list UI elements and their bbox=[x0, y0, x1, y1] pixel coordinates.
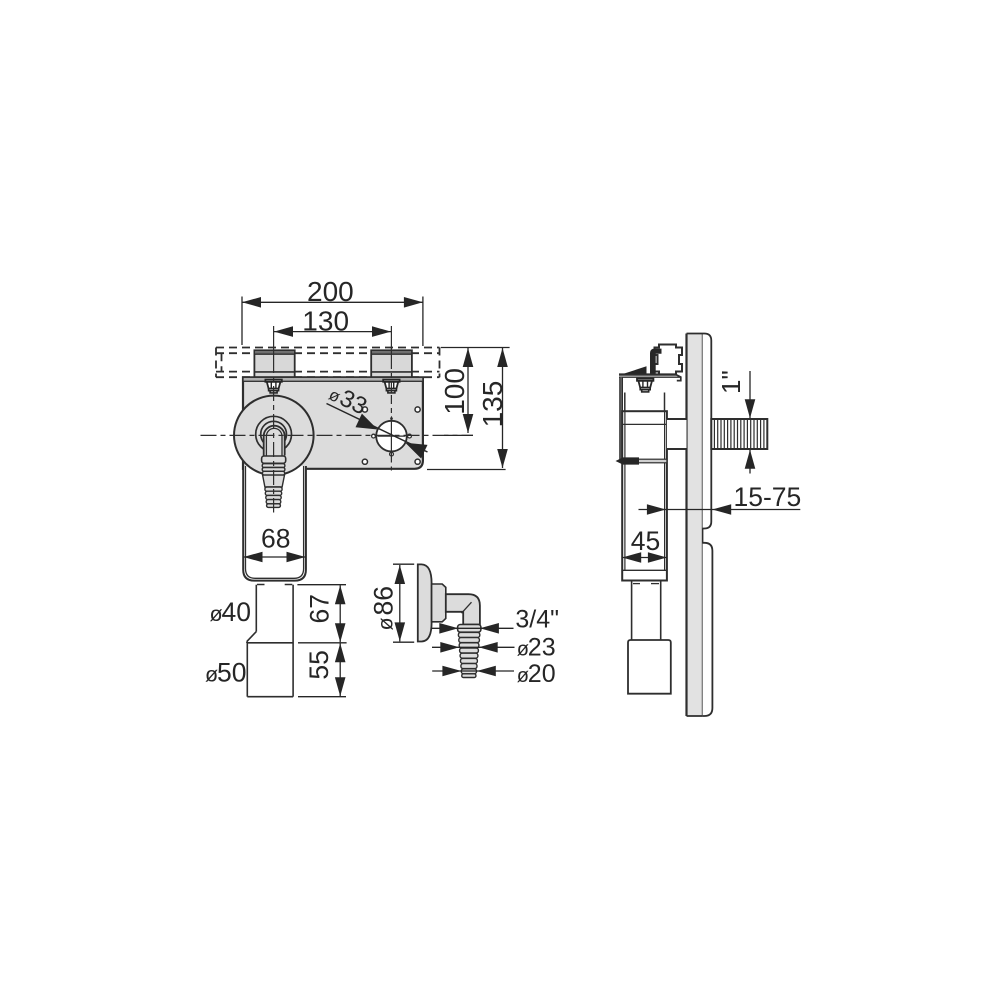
svg-text:100: 100 bbox=[439, 368, 470, 415]
svg-text:68: 68 bbox=[261, 523, 290, 553]
svg-text:86: 86 bbox=[369, 586, 399, 615]
svg-text:3/4": 3/4" bbox=[515, 606, 559, 634]
svg-text:15-75: 15-75 bbox=[734, 482, 802, 512]
svg-text:130: 130 bbox=[302, 306, 349, 337]
svg-text:50: 50 bbox=[217, 658, 246, 688]
svg-text:ø: ø bbox=[374, 617, 398, 630]
svg-text:40: 40 bbox=[222, 597, 251, 627]
svg-text:1": 1" bbox=[716, 370, 746, 394]
svg-text:55: 55 bbox=[304, 650, 334, 679]
svg-text:200: 200 bbox=[307, 276, 354, 307]
svg-text:135: 135 bbox=[477, 381, 508, 428]
svg-text:23: 23 bbox=[528, 634, 556, 662]
svg-text:45: 45 bbox=[631, 526, 660, 556]
svg-text:67: 67 bbox=[305, 594, 335, 623]
svg-text:20: 20 bbox=[528, 660, 556, 688]
